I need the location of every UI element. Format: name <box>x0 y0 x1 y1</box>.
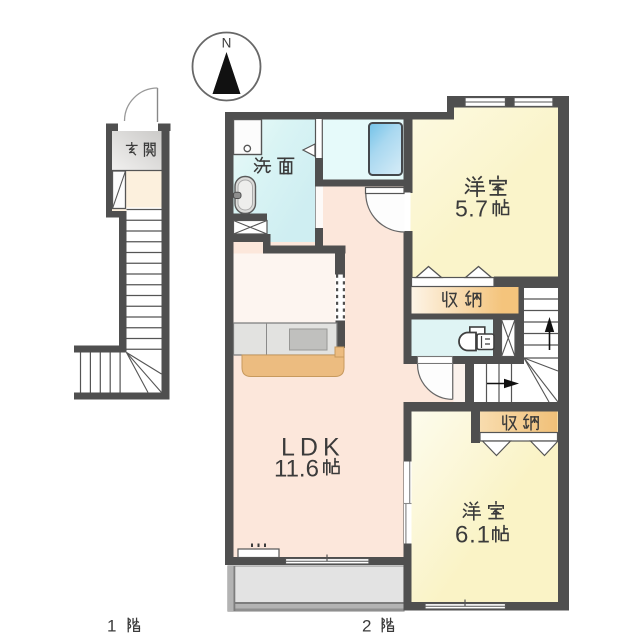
svg-text:1: 1 <box>107 617 116 636</box>
svg-text:11.6: 11.6 <box>274 456 319 483</box>
svg-text:6.1: 6.1 <box>455 522 491 549</box>
svg-text:N: N <box>222 36 232 51</box>
svg-text:5.7: 5.7 <box>455 196 488 222</box>
svg-text:2: 2 <box>362 617 371 636</box>
